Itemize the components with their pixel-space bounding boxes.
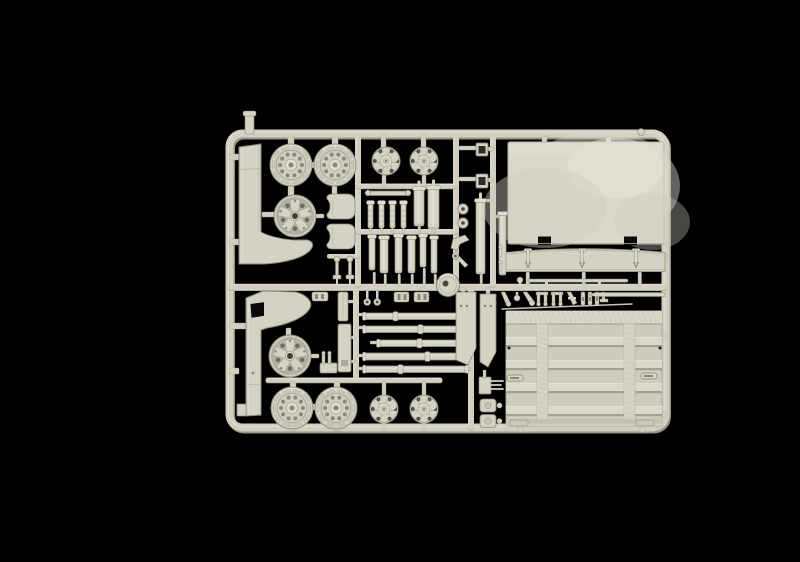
star-hub-1 — [372, 147, 400, 175]
mudguard-panel-1 — [456, 292, 476, 365]
shock-absorber-1 — [367, 201, 375, 229]
slot-plate-2 — [414, 292, 429, 302]
runner-horizontal-sub-bottom — [268, 379, 440, 381]
shock-absorber-9 — [419, 234, 428, 268]
shock-absorber-8 — [407, 236, 417, 274]
shock-absorber-10 — [430, 236, 439, 274]
injection-gate — [243, 111, 256, 134]
runner-horizontal-sub-top — [358, 185, 456, 187]
ejector-bump — [638, 129, 645, 136]
star-hub-4 — [410, 395, 438, 423]
lower-valance-panel — [506, 249, 665, 272]
strap-1 — [338, 292, 348, 321]
sprue-scene-svg — [40, 16, 800, 546]
mid-bracket — [312, 292, 328, 301]
shock-absorber-2 — [378, 201, 386, 229]
runner-horizontal-sub-mid — [358, 230, 456, 232]
model-kit-sprue-photo — [40, 16, 800, 546]
air-tank-1 — [413, 181, 426, 227]
thin-rod-lower — [589, 293, 665, 297]
strap-2 — [338, 324, 351, 372]
air-tank-2 — [427, 180, 441, 230]
big-roof-panel — [483, 131, 690, 250]
slot-plate-1 — [394, 292, 409, 302]
star-hub-2 — [410, 147, 438, 175]
chassis-rod-2 — [363, 325, 469, 334]
mirror-teardrop-1 — [458, 204, 468, 214]
shock-absorber-6 — [379, 236, 390, 274]
wheel-rim-3 — [271, 387, 313, 429]
spoked-hub-2 — [269, 335, 311, 377]
shock-absorber-5 — [368, 235, 377, 271]
runner-pin-bar — [329, 255, 358, 257]
torsion-bar — [365, 190, 411, 196]
runner-vertical-bottom-left — [354, 290, 356, 377]
spoked-hub-1 — [274, 195, 316, 237]
air-tank-long — [475, 193, 487, 275]
mudguard-panel-2 — [480, 294, 496, 367]
shock-absorber-3 — [389, 201, 397, 229]
seat-cushion-1 — [327, 194, 355, 219]
ribbed-tailgate-panel — [506, 311, 662, 426]
mirror-teardrop-2 — [458, 218, 468, 228]
window-square-2 — [476, 174, 488, 188]
runner-vertical-top-mid — [454, 137, 456, 285]
chassis-rod-3 — [377, 339, 469, 348]
star-hub-3 — [370, 395, 398, 423]
chassis-rod-5 — [363, 365, 469, 374]
shock-absorber-7 — [394, 234, 404, 274]
runner-vertical-top-left — [356, 137, 358, 285]
shock-absorber-4 — [400, 201, 408, 229]
window-square-1 — [476, 143, 488, 156]
seat-cushion-2 — [327, 224, 355, 249]
chassis-rod-4 — [363, 352, 469, 362]
wheel-rim-4 — [315, 387, 357, 429]
chassis-rod-1 — [363, 312, 469, 321]
wheel-rim-1 — [270, 144, 312, 186]
wheel-rim-2 — [314, 144, 356, 186]
